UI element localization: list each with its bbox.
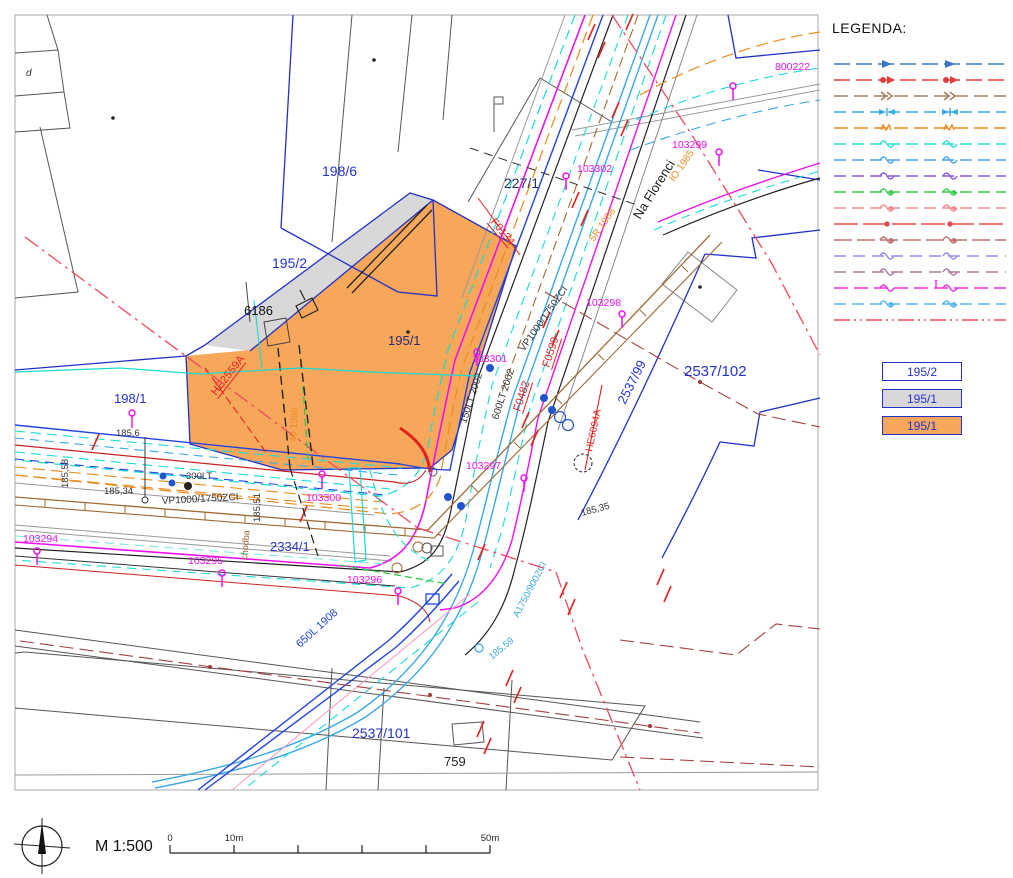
swatch-label: 195/2: [907, 365, 937, 379]
dotarrow-marker: [880, 76, 895, 84]
swatch-195-1-gray: 195/1: [882, 389, 962, 408]
parcel-label: 2537/102: [684, 363, 747, 380]
svg-text:227/1: 227/1: [504, 175, 539, 191]
svg-text:2334/1: 2334/1: [270, 539, 310, 554]
svg-text:6186: 6186: [244, 303, 273, 318]
legend-line-7: [832, 152, 1008, 168]
sinedot-marker: [880, 301, 894, 307]
legend-panel: LEGENDA:: [832, 20, 1008, 36]
zigzag-marker: [944, 125, 954, 130]
legend-line-15: [832, 280, 1008, 296]
legend-line-17: [832, 312, 1008, 328]
svg-text:2537/101: 2537/101: [352, 725, 411, 741]
svg-text:103300: 103300: [306, 492, 341, 504]
parcel-label: 198/1: [114, 391, 147, 406]
tech-label: 185,34: [104, 486, 133, 497]
point-label: 103298: [586, 297, 621, 309]
compass-rose: [14, 818, 70, 874]
legend-line-12: [832, 232, 1008, 248]
point-label: 103302: [577, 163, 612, 175]
svg-text:103294: 103294: [23, 533, 58, 545]
dot-marker: [884, 221, 889, 226]
utility-map-page: d198/6227/1195/26186195/1198/12334/12537…: [0, 0, 1013, 878]
swatch-195-1-orange: 195/1: [882, 416, 962, 435]
parcel-label: d: [26, 68, 32, 79]
scale-tick-label: 50m: [481, 833, 500, 844]
lollipop-marker: [933, 280, 957, 291]
svg-text:d: d: [26, 68, 32, 79]
legend-line-14: [832, 264, 1008, 280]
svg-text:800222: 800222: [775, 61, 810, 73]
dot-marker: [947, 221, 952, 226]
legend-line-13: [832, 248, 1008, 264]
point-label: 103294: [23, 533, 58, 545]
scale-bar: 010m50m: [167, 833, 499, 853]
point-label: 103299: [672, 139, 707, 151]
legend-line-2: [832, 72, 1008, 88]
scale-tick-label: 10m: [225, 833, 244, 844]
svg-text:198/6: 198/6: [322, 163, 357, 179]
parcel-label: 2334/1: [270, 539, 310, 554]
bowtie-marker: [879, 108, 895, 116]
svg-text:103301: 103301: [472, 353, 507, 365]
legend-line-9: [832, 184, 1008, 200]
swatch-label: 195/1: [907, 419, 937, 433]
svg-text:185,6: 185,6: [116, 428, 140, 439]
svg-text:185,58: 185,58: [60, 459, 71, 488]
legend-line-1: [832, 56, 1008, 72]
tech-label: 185,58: [60, 459, 71, 488]
tech-label: 185,6: [116, 428, 140, 439]
svg-text:103297: 103297: [466, 460, 501, 472]
svg-text:103298: 103298: [586, 297, 621, 309]
legend-line-list: [832, 56, 1008, 328]
svg-text:300LT: 300LT: [186, 471, 212, 482]
swatch-label: 195/1: [907, 392, 937, 406]
legend-line-11: [832, 216, 1008, 232]
parcel-label: 195/2: [272, 255, 307, 271]
legend-line-6: [832, 136, 1008, 152]
sinedot-marker: [880, 205, 894, 211]
point-label: 103301: [472, 353, 507, 365]
point-label: 103300: [306, 492, 341, 504]
swatch-195-2: 195/2: [882, 362, 962, 381]
legend-title: LEGENDA:: [832, 20, 1008, 36]
svg-text:185,51: 185,51: [252, 493, 263, 522]
sinedot-marker: [943, 237, 957, 243]
svg-text:103302: 103302: [577, 163, 612, 175]
bowtie-marker: [942, 108, 958, 116]
point-label: 103297: [466, 460, 501, 472]
svg-text:185,34: 185,34: [104, 486, 133, 497]
legend-swatches: 195/2 195/1 195/1: [882, 362, 962, 443]
svg-text:103296: 103296: [347, 574, 382, 586]
svg-text:103295: 103295: [188, 555, 223, 567]
arrow-marker: [945, 60, 955, 68]
arrow-marker: [882, 60, 892, 68]
parcel-label: 227/1: [504, 175, 539, 191]
dotarrow-marker: [943, 76, 958, 84]
svg-text:2537/102: 2537/102: [684, 363, 747, 380]
sinedot-marker: [880, 189, 894, 195]
map-scale-text: M 1:500: [95, 838, 153, 856]
tech-label: 40 1996: [288, 407, 301, 442]
svg-text:40 1996: 40 1996: [288, 407, 301, 442]
tech-label: 185,51: [252, 493, 263, 522]
scale-tick-label: 0: [167, 833, 172, 844]
legend-line-16: [832, 296, 1008, 312]
point-label: 800222: [775, 61, 810, 73]
legend-line-10: [832, 200, 1008, 216]
svg-text:195/2: 195/2: [272, 255, 307, 271]
svg-text:198/1: 198/1: [114, 391, 147, 406]
point-label: 103295: [188, 555, 223, 567]
tech-label: 300LT: [186, 471, 212, 482]
svg-text:103299: 103299: [672, 139, 707, 151]
point-label: 103296: [347, 574, 382, 586]
parcel-label: 198/6: [322, 163, 357, 179]
legend-line-5: [832, 120, 1008, 136]
legend-line-4: [832, 104, 1008, 120]
parcel-label: 2537/101: [352, 725, 411, 741]
parcel-label: 6186: [244, 303, 273, 318]
legend-line-3: [832, 88, 1008, 104]
legend-line-8: [832, 168, 1008, 184]
parcel-label: 195/1: [388, 333, 421, 348]
svg-text:759: 759: [444, 754, 466, 769]
parcel-label: 759: [444, 754, 466, 769]
svg-text:195/1: 195/1: [388, 333, 421, 348]
